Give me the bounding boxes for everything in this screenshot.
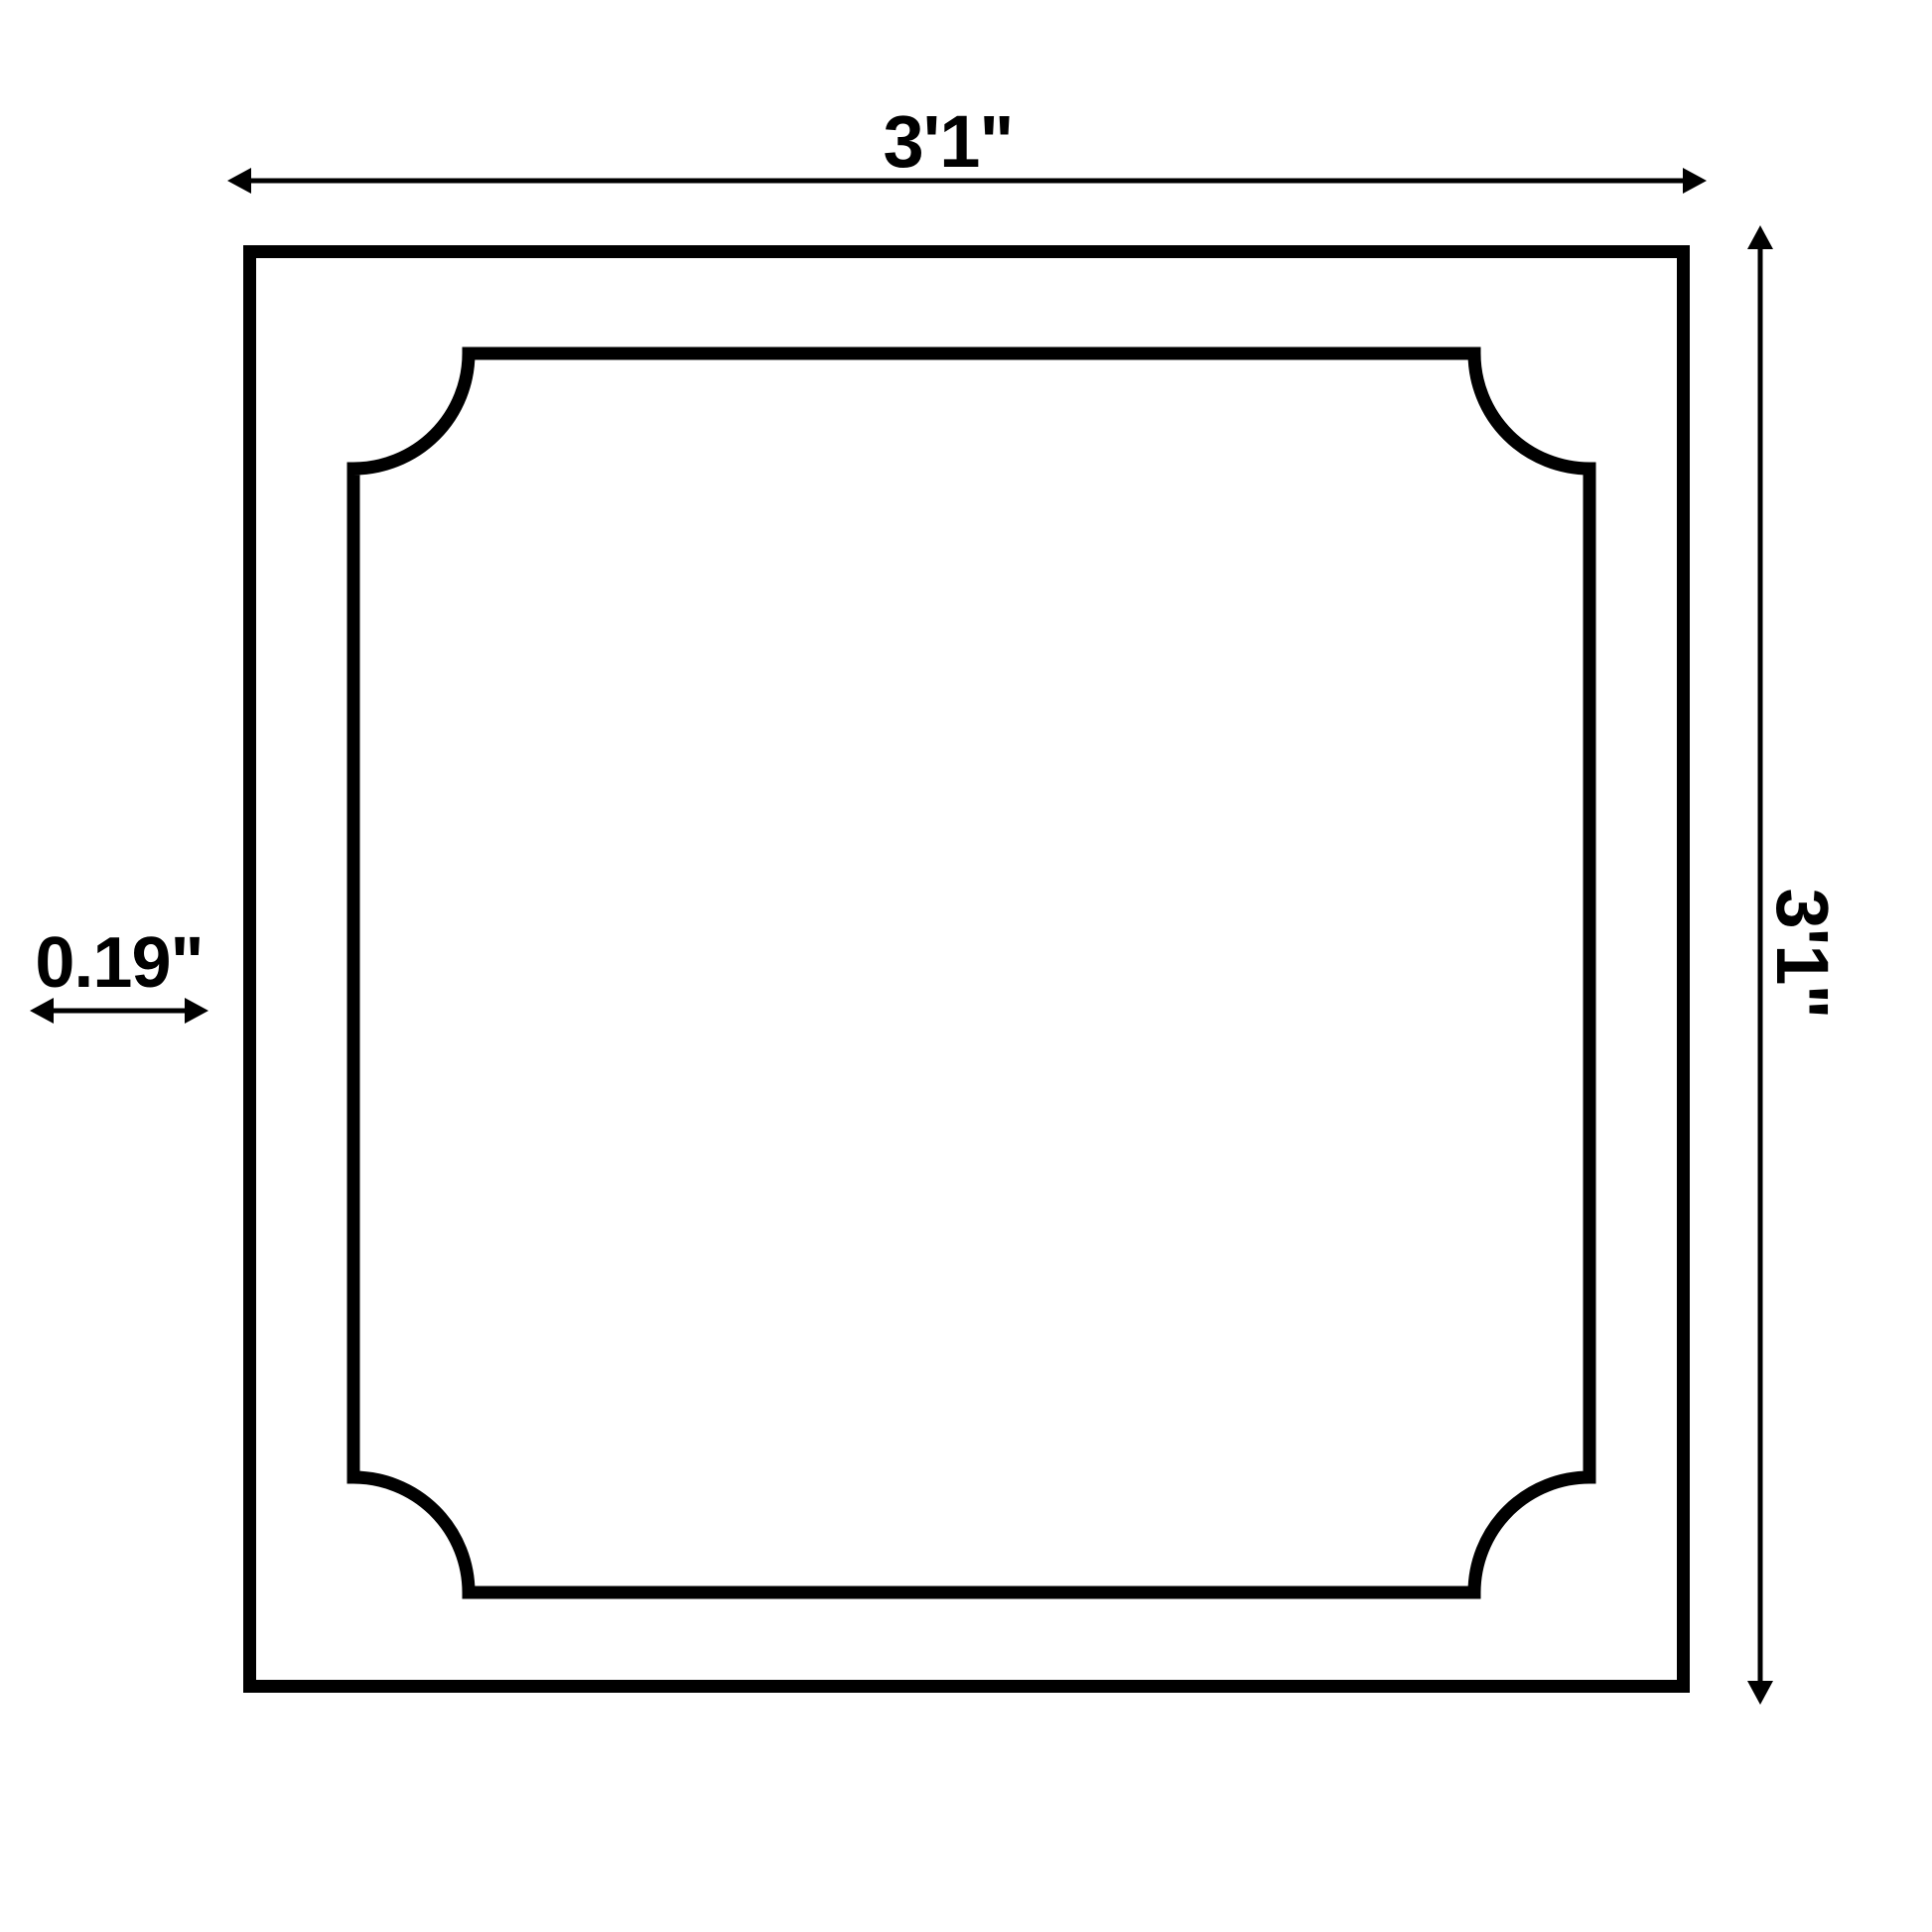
thickness-dimension-label: 0.19" (35, 923, 203, 1003)
arrow-left-icon (227, 168, 251, 194)
arrow-right-icon (1683, 168, 1707, 194)
arrow-up-icon (1747, 225, 1773, 249)
inner-panel-scalloped-outline (353, 353, 1589, 1592)
diagram-canvas: 3'1" 3'1" 0.19" (0, 0, 1932, 1932)
height-dimension: 3'1" (1747, 225, 1844, 1705)
thickness-dimension: 0.19" (30, 923, 208, 1024)
width-dimension-label: 3'1" (884, 100, 1014, 183)
outer-square-outline (250, 252, 1684, 1687)
width-dimension: 3'1" (227, 100, 1707, 194)
arrow-down-icon (1747, 1681, 1773, 1705)
height-dimension-label: 3'1" (1761, 889, 1844, 1019)
panel-dimension-diagram: 3'1" 3'1" 0.19" (0, 0, 1932, 1932)
